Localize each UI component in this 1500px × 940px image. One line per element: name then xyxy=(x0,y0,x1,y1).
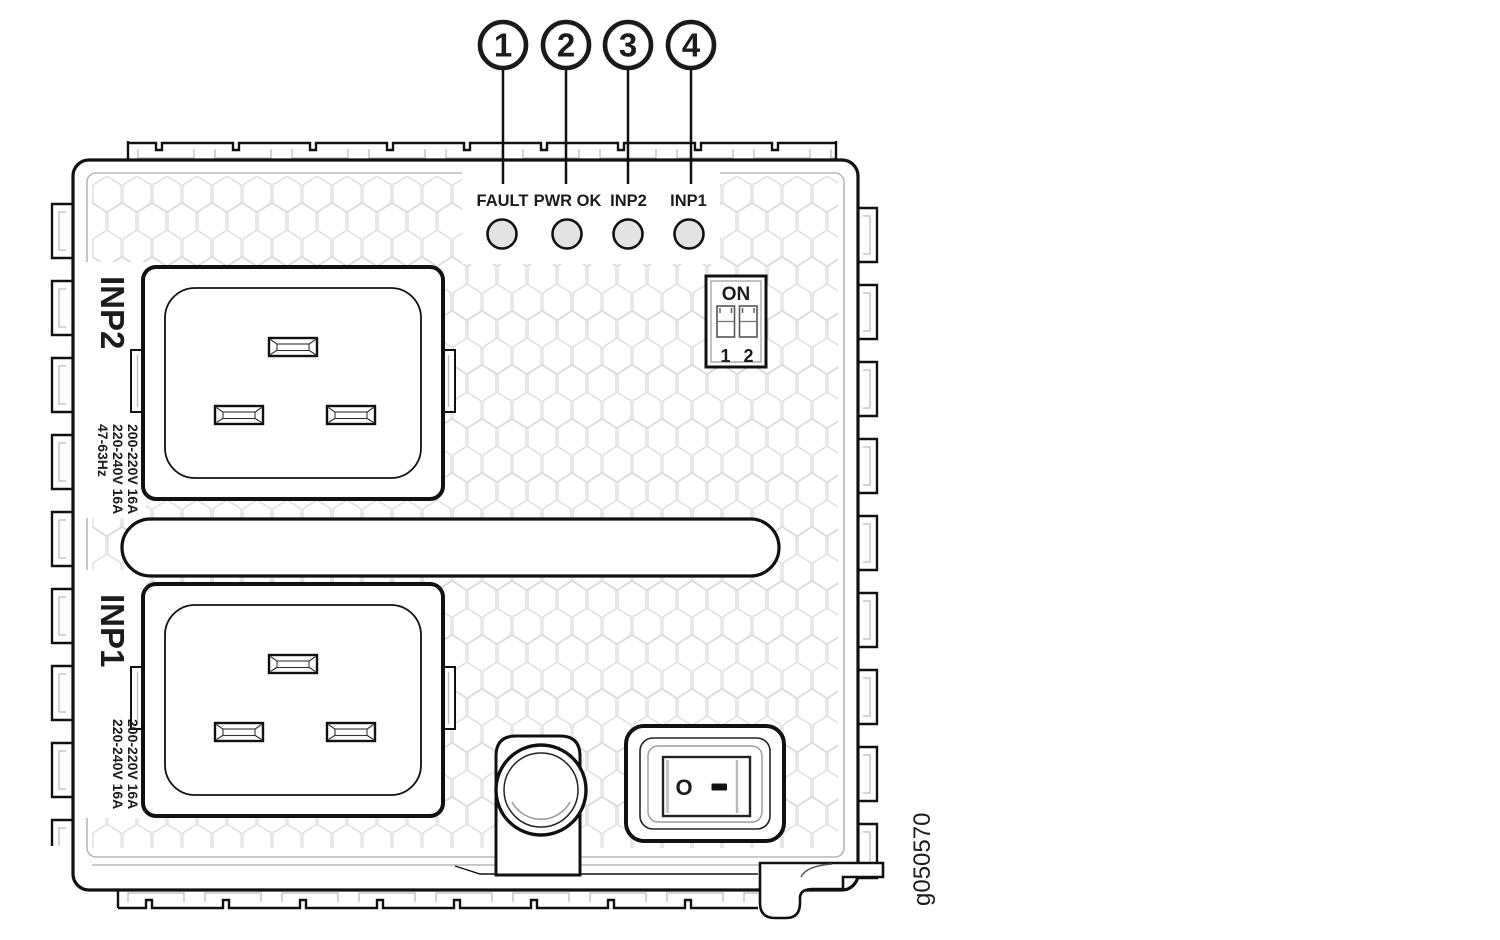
callout-3-number: 3 xyxy=(619,27,637,64)
callout-2: 2 xyxy=(543,22,589,68)
psu-diagram: FAULT PWR OK INP2 INP1 ON 1 2 INP2 200-2… xyxy=(0,0,1500,940)
inp2-label: INP2 xyxy=(94,276,131,349)
inp1-rating-2: 220-240V 16A xyxy=(110,719,126,809)
pull-handle xyxy=(122,519,779,576)
power-on-symbol xyxy=(712,784,728,791)
inp2-rating-3: 47-63Hz xyxy=(95,424,111,477)
rocker: O xyxy=(663,757,750,816)
callout-1: 1 xyxy=(480,22,526,68)
inp2-rating-1: 200-220V 16A xyxy=(125,424,141,514)
left-edge-serration xyxy=(44,196,74,846)
inp2-led xyxy=(614,220,643,249)
power-off-symbol: O xyxy=(675,775,692,800)
ac-inlet-inp1: INP1 200-220V 16A 220-240V 16A xyxy=(94,584,455,816)
thumbscrew-knob xyxy=(496,745,586,835)
callout-3: 3 xyxy=(605,22,651,68)
dip-pos1-label: 1 xyxy=(720,346,730,366)
right-edge-serration xyxy=(857,200,885,880)
led-label-inp1: INP1 xyxy=(670,192,707,210)
dip-switch-1 xyxy=(717,306,735,337)
led-label-inp2: INP2 xyxy=(610,192,647,210)
power-switch: O xyxy=(626,726,784,841)
callout-4-number: 4 xyxy=(682,27,701,64)
inp2-rating-2: 220-240V 16A xyxy=(110,424,126,514)
ac-inlet-inp2: INP2 200-220V 16A 220-240V 16A 47-63Hz xyxy=(94,267,455,514)
inp1-label: INP1 xyxy=(94,594,131,667)
dip-switch-2 xyxy=(740,306,758,337)
figure-id: g050570 xyxy=(909,813,936,906)
callout-1-number: 1 xyxy=(494,27,512,64)
callout-2-number: 2 xyxy=(557,27,575,64)
led-label-pwr-ok: PWR OK xyxy=(534,192,602,210)
dip-pos2-label: 2 xyxy=(743,346,753,366)
dip-on-label: ON xyxy=(722,284,751,305)
psu-faceplate-figure: FAULT PWR OK INP2 INP1 ON 1 2 INP2 200-2… xyxy=(0,0,1500,940)
led-label-fault: FAULT xyxy=(477,192,529,210)
inp1-led xyxy=(675,220,704,249)
dip-switch: ON 1 2 xyxy=(706,276,766,367)
pwr-ok-led xyxy=(553,220,582,249)
callout-4: 4 xyxy=(668,22,714,68)
fault-led xyxy=(488,220,517,249)
captive-thumbscrew xyxy=(496,736,586,875)
inp1-rating-1: 200-220V 16A xyxy=(125,719,141,809)
